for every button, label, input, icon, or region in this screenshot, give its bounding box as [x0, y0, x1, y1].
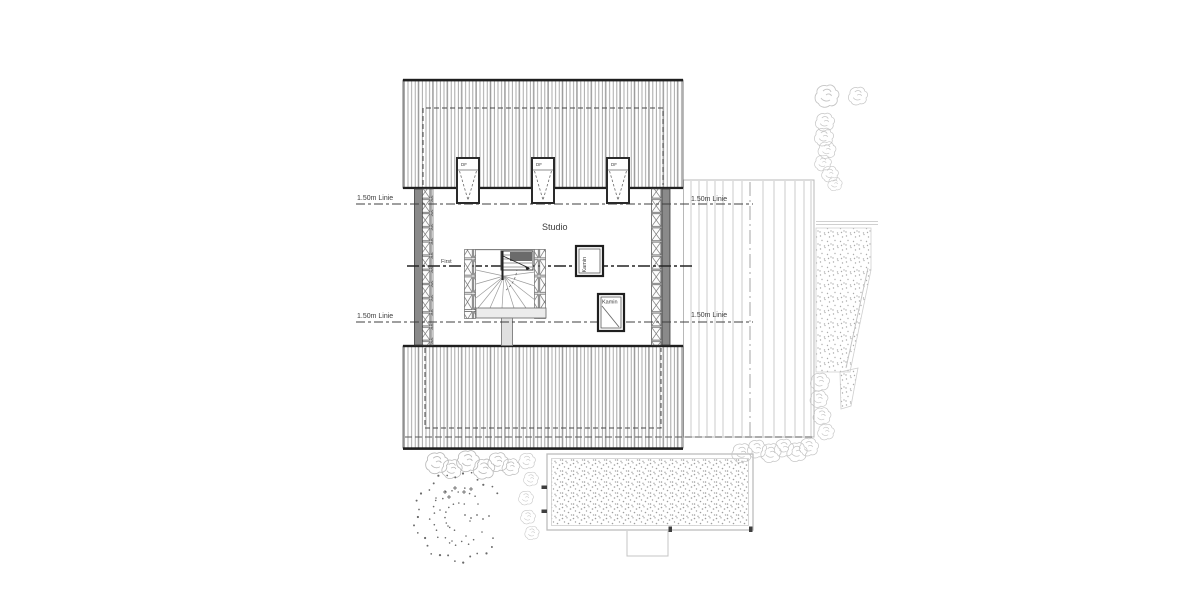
dormer-2: DF — [532, 158, 554, 203]
floor-plan-svg: 1.50m Linie 1.50m Linie 1.50m Linie 1.50… — [0, 0, 1200, 600]
stair-bottom-landing — [476, 308, 546, 318]
chimney-upper: Kamin — [576, 246, 603, 276]
dormer-1: DF — [457, 158, 479, 203]
stair-guard-left — [465, 250, 476, 319]
shrub-chain-top-right — [814, 85, 867, 191]
terrace-tick — [749, 527, 753, 533]
floor-plan-canvas: 1.50m Linie 1.50m Linie 1.50m Linie 1.50… — [0, 0, 1200, 600]
height-line-label-upper-right: 1.50m Linie — [691, 196, 727, 203]
stair-winders — [476, 270, 535, 308]
height-line-label-lower-right: 1.50m Linie — [691, 312, 727, 319]
chimney-lower: Kamin — [598, 294, 624, 331]
dormer-label: DF — [461, 162, 467, 167]
deck-area — [684, 180, 815, 437]
chimney-lower-label: Kamin — [602, 300, 618, 306]
terrace — [542, 454, 754, 556]
height-line-label-lower-left: 1.50m Linie — [357, 313, 393, 320]
terrace-tick — [542, 486, 548, 490]
stair-dark-landing — [510, 252, 532, 261]
terrace-tick — [669, 527, 673, 533]
dormer-3: DF — [607, 158, 629, 203]
dormer-label: DF — [611, 162, 617, 167]
staircase — [465, 250, 547, 346]
shrub-column-middle — [519, 453, 540, 539]
terrace-tick — [542, 510, 548, 514]
room-label-studio: Studio — [542, 222, 568, 232]
height-line-label-upper-left: 1.50m Linie — [357, 195, 393, 202]
tree-canopy — [413, 472, 498, 564]
chimney-upper-label: Kamin — [582, 257, 588, 273]
ridge-label-first: First — [441, 259, 452, 265]
gravel-area — [816, 222, 878, 410]
garden-steps — [627, 531, 668, 556]
shrub-row-bottom — [426, 451, 520, 480]
dormer-label: DF — [536, 162, 542, 167]
